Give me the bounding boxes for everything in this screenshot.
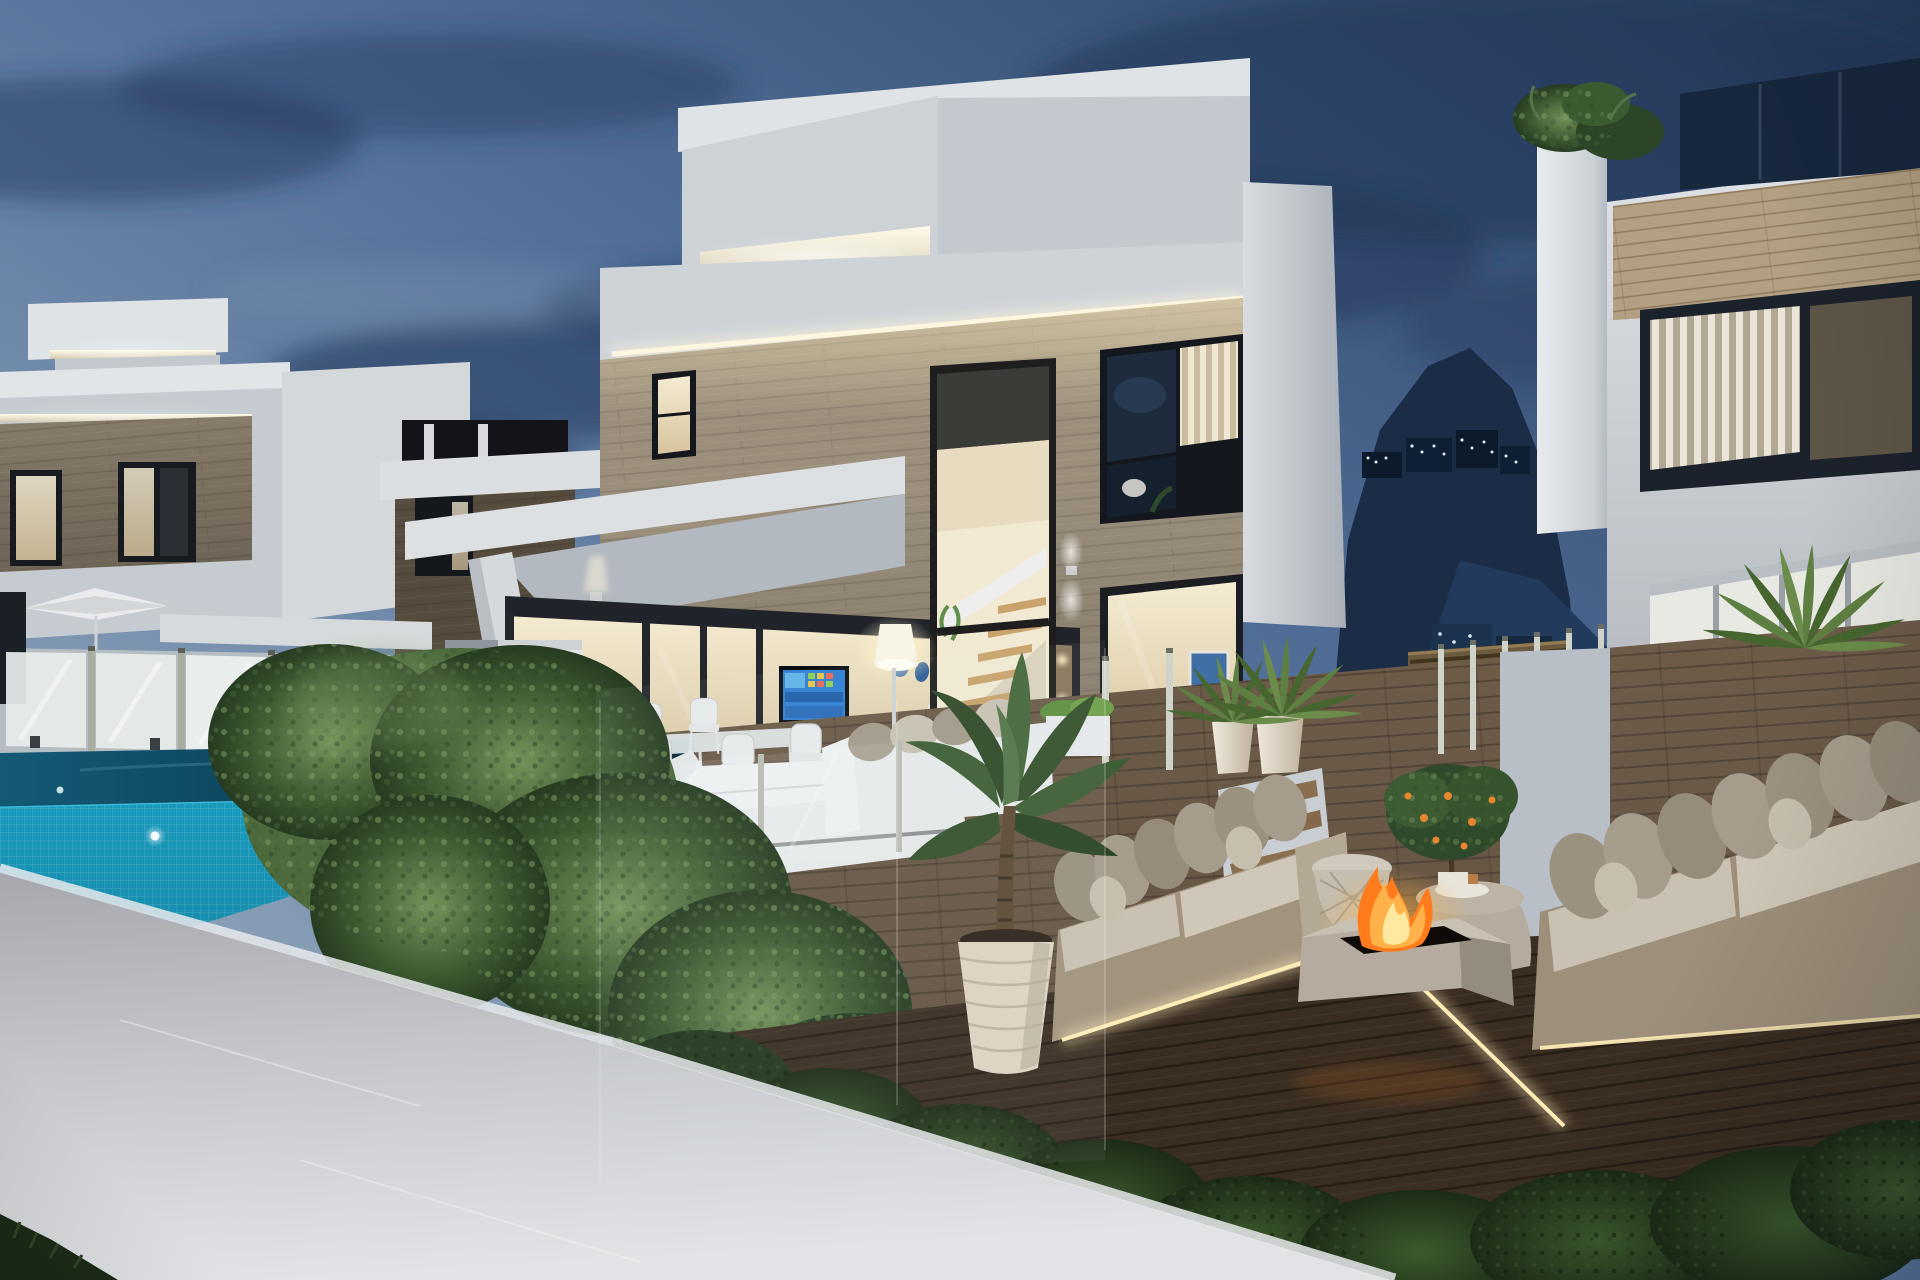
vignette <box>0 0 1920 1280</box>
rendered-scene: New-build luxury villas with infinity po… <box>0 0 1920 1280</box>
